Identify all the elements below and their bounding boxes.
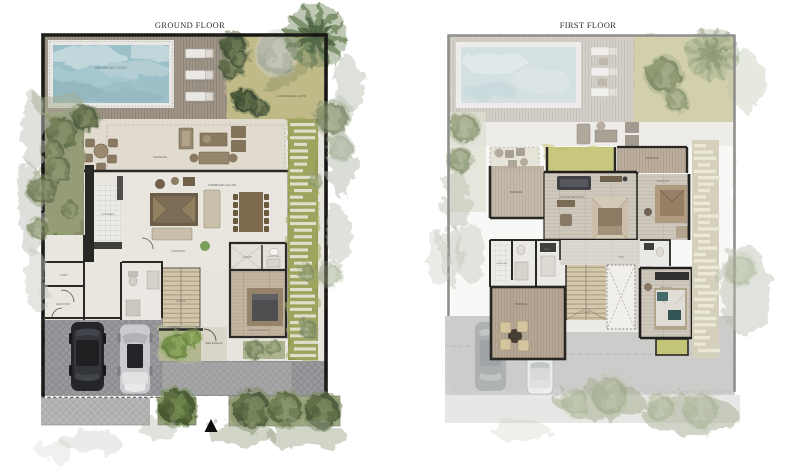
svg-text:FIRST FLOOR: FIRST FLOOR [560, 21, 617, 30]
svg-text:GROUND FLOOR: GROUND FLOOR [155, 21, 225, 30]
